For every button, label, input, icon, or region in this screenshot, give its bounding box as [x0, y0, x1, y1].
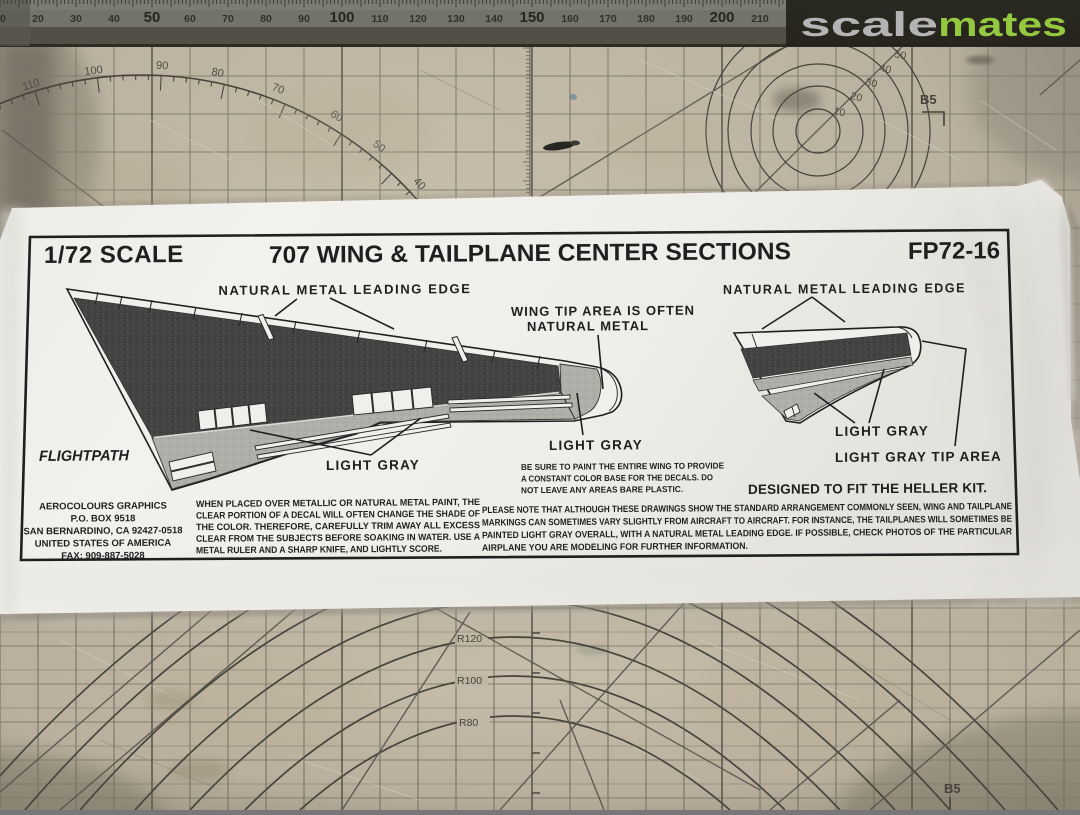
svg-text:NATURAL METAL: NATURAL METAL [527, 318, 649, 334]
svg-text:707 WING & TAILPLANE CENTER SE: 707 WING & TAILPLANE CENTER SECTIONS [269, 238, 791, 269]
svg-text:190: 190 [675, 13, 693, 25]
svg-text:METAL RULER AND A SHARP KNIFE,: METAL RULER AND A SHARP KNIFE, AND LIGHT… [196, 544, 442, 556]
svg-text:B5: B5 [920, 92, 937, 107]
svg-text:90: 90 [298, 13, 310, 25]
svg-text:scale: scale [800, 6, 938, 44]
svg-text:80: 80 [260, 13, 272, 25]
svg-text:120: 120 [409, 13, 427, 25]
svg-text:WING TIP AREA IS OFTEN: WING TIP AREA IS OFTEN [511, 303, 695, 319]
svg-text:70: 70 [222, 13, 234, 25]
svg-text:20: 20 [32, 13, 44, 25]
svg-text:DESIGNED TO FIT THE HELLER KIT: DESIGNED TO FIT THE HELLER KIT. [748, 480, 987, 497]
svg-text:WHEN PLACED OVER METALLIC OR N: WHEN PLACED OVER METALLIC OR NATURAL MET… [196, 497, 480, 509]
svg-text:P.O. BOX 9518: P.O. BOX 9518 [71, 513, 136, 524]
svg-text:30: 30 [70, 13, 82, 25]
svg-text:AEROCOLOURS GRAPHICS: AEROCOLOURS GRAPHICS [39, 501, 167, 513]
svg-text:10: 10 [0, 13, 6, 25]
svg-text:100: 100 [329, 9, 354, 26]
svg-text:LIGHT GRAY TIP AREA: LIGHT GRAY TIP AREA [835, 449, 1002, 465]
svg-text:LIGHT GRAY: LIGHT GRAY [549, 437, 643, 453]
svg-text:60: 60 [184, 13, 196, 25]
svg-text:50: 50 [144, 9, 161, 26]
svg-text:THE COLOR. THEREFORE, CAREFUL: THE COLOR. THEREFORE, CAREFULLY TRIM AWA… [196, 520, 480, 532]
svg-text:LIGHT GRAY: LIGHT GRAY [326, 457, 420, 473]
svg-text:mates: mates [938, 6, 1067, 44]
svg-text:90: 90 [156, 60, 169, 73]
svg-text:R80: R80 [459, 717, 478, 729]
svg-text:FAX: 909-887-5028: FAX: 909-887-5028 [61, 550, 145, 562]
svg-text:170: 170 [599, 13, 617, 25]
svg-text:1/72 SCALE: 1/72 SCALE [44, 241, 184, 269]
svg-text:140: 140 [485, 13, 503, 25]
svg-text:UNITED STATES OF AMERICA: UNITED STATES OF AMERICA [35, 538, 172, 550]
svg-text:CLEAR FROM THE SUBJECTS BEFORE: CLEAR FROM THE SUBJECTS BEFORE SOAKING I… [196, 532, 480, 544]
svg-text:180: 180 [637, 13, 655, 25]
svg-text:150: 150 [519, 9, 544, 26]
svg-text:FP72-16: FP72-16 [908, 237, 1000, 265]
svg-text:130: 130 [447, 13, 465, 25]
svg-text:LIGHT GRAY: LIGHT GRAY [835, 423, 929, 439]
svg-text:200: 200 [709, 9, 734, 26]
svg-text:R100: R100 [457, 675, 482, 687]
svg-text:AIRPLANE YOU ARE MODELING FOR: AIRPLANE YOU ARE MODELING FOR FURTHER IN… [482, 541, 748, 553]
svg-text:BE SURE TO PAINT THE ENTIRE WI: BE SURE TO PAINT THE ENTIRE WING TO PROV… [521, 461, 724, 472]
svg-text:NATURAL METAL LEADING EDGE: NATURAL METAL LEADING EDGE [723, 280, 966, 297]
svg-text:B5: B5 [944, 781, 961, 796]
svg-text:CLEAR PORTION OF A DECAL WILL: CLEAR PORTION OF A DECAL WILL OFTEN CHAN… [196, 509, 480, 521]
svg-text:40: 40 [108, 13, 120, 25]
svg-text:A CONSTANT COLOR BASE FOR THE: A CONSTANT COLOR BASE FOR THE DECALS. DO [521, 472, 713, 483]
svg-text:R120: R120 [457, 633, 482, 645]
svg-text:SAN BERNARDINO, CA 92427-0518: SAN BERNARDINO, CA 92427-0518 [23, 525, 182, 537]
svg-text:NATURAL METAL LEADING EDGE: NATURAL METAL LEADING EDGE [218, 281, 471, 298]
svg-text:80: 80 [210, 66, 224, 80]
svg-text:210: 210 [751, 13, 769, 25]
svg-text:NOT LEAVE ANY AREAS BARE PLAST: NOT LEAVE ANY AREAS BARE PLASTIC. [521, 484, 683, 495]
svg-text:100: 100 [84, 64, 104, 78]
svg-text:FLIGHTPATH: FLIGHTPATH [39, 447, 130, 465]
svg-text:110: 110 [372, 13, 389, 25]
svg-text:160: 160 [561, 13, 579, 25]
